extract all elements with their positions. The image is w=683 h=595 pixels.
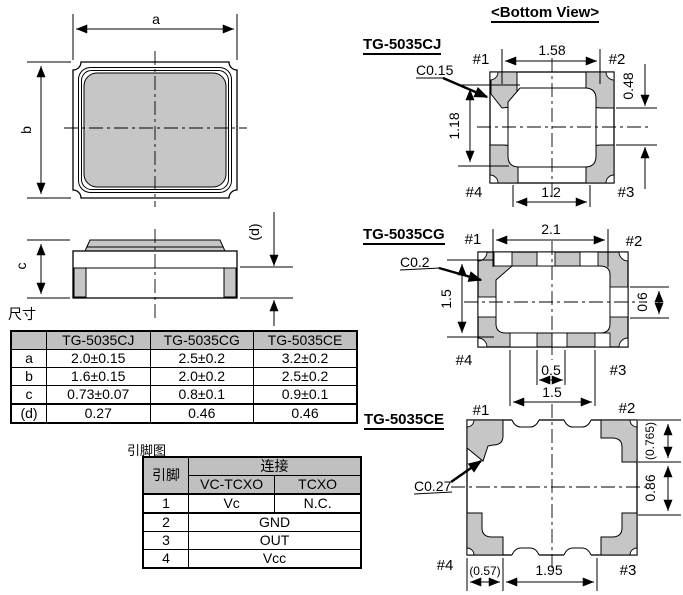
dimension-table-title: 尺寸 bbox=[8, 307, 36, 322]
bottom-view-cj: 1.58 1.18 0.48 1.2 #1 #2 #3 #4 C0.15 bbox=[416, 42, 657, 207]
pin-1-number: 1 bbox=[143, 494, 189, 513]
cj-pin1-label: #1 bbox=[473, 51, 490, 68]
value-d-cj: 0.27 bbox=[47, 404, 151, 423]
pin-header-cell: 引脚 bbox=[143, 457, 189, 494]
value-a-cj: 2.0±0.15 bbox=[47, 350, 151, 368]
value-c-cg: 0.8±0.1 bbox=[150, 386, 254, 405]
package-drawing-page: a b c (d) bbox=[0, 0, 683, 595]
pin-row-2: 2 GND bbox=[143, 513, 361, 532]
table-row-a: a 2.0±0.15 2.5±0.2 3.2±0.2 bbox=[11, 350, 357, 368]
cg-chamfer-label: C0.2 bbox=[400, 254, 430, 270]
table-row-c: c 0.73±0.07 0.8±0.1 0.9±0.1 bbox=[11, 386, 357, 405]
cg-cavity bbox=[496, 266, 610, 333]
row-label-c: c bbox=[11, 386, 47, 405]
ce-dim-bottom: 1.95 bbox=[535, 562, 562, 578]
value-c-ce: 0.9±0.1 bbox=[254, 386, 358, 405]
cg-dim-top: 2.1 bbox=[541, 221, 561, 237]
dimension-table: TG-5035CJ TG-5035CG TG-5035CE a 2.0±0.15… bbox=[10, 330, 358, 424]
pin-2-number: 2 bbox=[143, 513, 189, 532]
cj-view-label: TG-5035CJ bbox=[363, 37, 441, 55]
value-b-cg: 2.0±0.2 bbox=[150, 368, 254, 386]
pin-row-3: 3 OUT bbox=[143, 532, 361, 550]
table-row-b: b 1.6±0.15 2.0±0.2 2.5±0.2 bbox=[11, 368, 357, 386]
pin-3-connection: OUT bbox=[189, 532, 362, 550]
value-d-ce: 0.46 bbox=[254, 404, 358, 423]
cg-pin1-label: #1 bbox=[465, 231, 482, 248]
package-top-view: a b bbox=[18, 11, 247, 207]
cg-dim-left: 1.5 bbox=[438, 289, 454, 309]
corner-cell bbox=[11, 331, 47, 350]
row-label-d: (d) bbox=[11, 404, 47, 423]
pin-connection-table: 引脚 连接 VC-TCXO TCXO 1 Vc N.C. 2 GND 3 OUT… bbox=[142, 456, 362, 569]
col-header-ce: TG-5035CE bbox=[254, 331, 358, 350]
cg-chamfer-arrow bbox=[439, 268, 481, 280]
cj-chamfer-arrow bbox=[443, 78, 487, 97]
subheader-vc-tcxo: VC-TCXO bbox=[189, 476, 275, 495]
bottom-view-title: <Bottom View> bbox=[491, 5, 599, 23]
pin-row-1: 1 Vc N.C. bbox=[143, 494, 361, 513]
table-row-d: (d) 0.27 0.46 0.46 bbox=[11, 404, 357, 423]
dim-d-label: (d) bbox=[246, 223, 262, 240]
cg-dim-bottom: 1.5 bbox=[542, 384, 562, 400]
cj-pin4-label: #4 bbox=[466, 184, 483, 201]
value-b-cj: 1.6±0.15 bbox=[47, 368, 151, 386]
cg-dim-right: 0.6 bbox=[634, 292, 650, 312]
cj-dim-left: 1.18 bbox=[446, 112, 462, 139]
bottom-view-cg: 2.1 1.5 0.6 0.5 1.5 #1 #2 #3 #4 C0.2 bbox=[400, 221, 669, 406]
cg-pin4-label: #4 bbox=[456, 352, 473, 369]
cj-dim-right: 0.48 bbox=[620, 72, 636, 99]
cg-view-label: TG-5035CG bbox=[363, 227, 445, 245]
dimension-table-header-row: TG-5035CJ TG-5035CG TG-5035CE bbox=[11, 331, 357, 350]
cj-dim-bottom: 1.2 bbox=[541, 184, 561, 200]
pin-3-number: 3 bbox=[143, 532, 189, 550]
ce-view-label: TG-5035CE bbox=[364, 412, 444, 430]
cg-dim-bottom-inner: 0.5 bbox=[541, 362, 561, 378]
col-header-cg: TG-5035CG bbox=[150, 331, 254, 350]
subheader-tcxo: TCXO bbox=[275, 476, 361, 495]
pin-4-connection: Vcc bbox=[189, 550, 362, 569]
pin-2-connection: GND bbox=[189, 513, 362, 532]
pin-row-4: 4 Vcc bbox=[143, 550, 361, 569]
ce-pin3-label: #3 bbox=[620, 562, 637, 579]
dim-b-label: b bbox=[18, 126, 34, 134]
cj-chamfer-label: C0.15 bbox=[416, 62, 454, 78]
connection-header-cell: 连接 bbox=[189, 457, 362, 476]
pin-1-vc-tcxo: Vc bbox=[189, 494, 275, 513]
ce-dim-right-top: (0.765) bbox=[643, 422, 657, 460]
cg-pin2-label: #2 bbox=[626, 233, 643, 250]
value-b-ce: 2.5±0.2 bbox=[254, 368, 358, 386]
ce-pin1-label: #1 bbox=[473, 402, 490, 419]
cj-pin3-label: #3 bbox=[618, 184, 635, 201]
dim-a-label: a bbox=[152, 11, 160, 27]
pin-1-tcxo: N.C. bbox=[275, 494, 361, 513]
value-a-ce: 3.2±0.2 bbox=[254, 350, 358, 368]
bottom-view-ce: (0.765) 0.86 (0.57) 1.95 #1 #2 #3 #4 C0.… bbox=[414, 400, 681, 591]
cj-pin2-label: #2 bbox=[609, 51, 626, 68]
row-label-a: a bbox=[11, 350, 47, 368]
ce-dim-bottom-left: (0.57) bbox=[469, 564, 500, 578]
row-label-b: b bbox=[11, 368, 47, 386]
ce-chamfer-label: C0.27 bbox=[414, 478, 452, 494]
col-header-cj: TG-5035CJ bbox=[47, 331, 151, 350]
dim-c-label: c bbox=[13, 263, 29, 270]
ce-pin4-label: #4 bbox=[437, 557, 454, 574]
ce-dim-right: 0.86 bbox=[642, 474, 658, 501]
cj-dim-top: 1.58 bbox=[538, 42, 565, 58]
value-c-cj: 0.73±0.07 bbox=[47, 386, 151, 405]
pin-table-header-row: 引脚 连接 bbox=[143, 457, 361, 476]
ce-pin2-label: #2 bbox=[619, 400, 636, 417]
cg-pin3-label: #3 bbox=[610, 362, 627, 379]
pin-4-number: 4 bbox=[143, 550, 189, 569]
value-d-cg: 0.46 bbox=[150, 404, 254, 423]
value-a-cg: 2.5±0.2 bbox=[150, 350, 254, 368]
left-terminal bbox=[74, 268, 86, 297]
package-side-view: c (d) bbox=[13, 212, 293, 326]
right-terminal bbox=[224, 268, 236, 297]
